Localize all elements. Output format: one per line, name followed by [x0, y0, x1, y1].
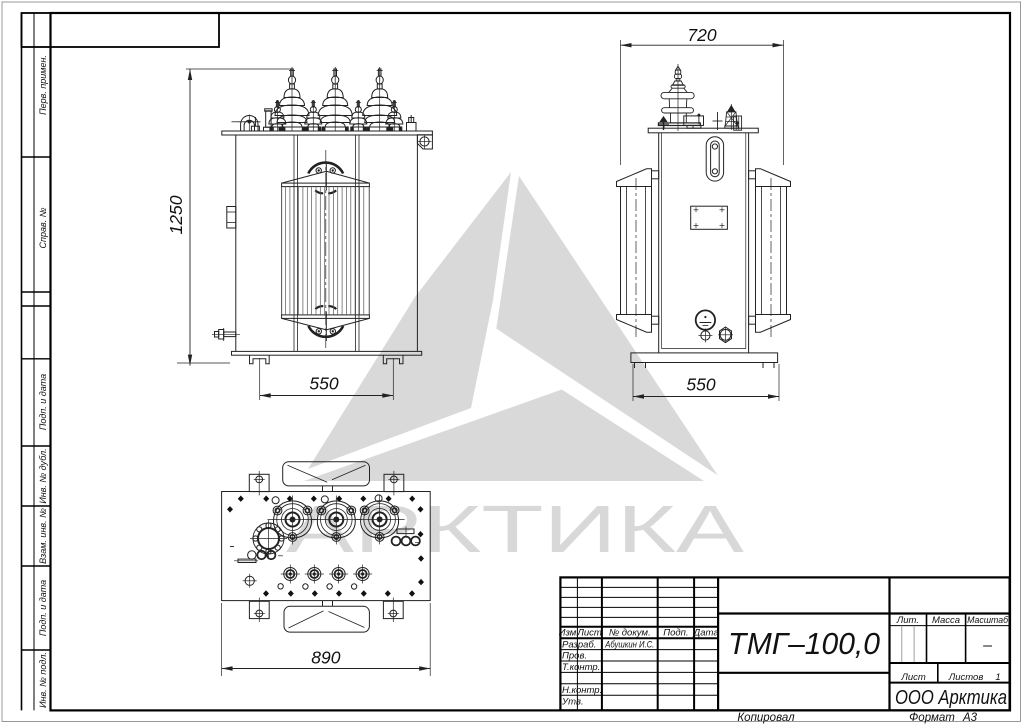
- svg-text:Лист: Лист: [900, 672, 926, 683]
- svg-text:Утв.: Утв.: [561, 696, 584, 707]
- svg-text:Т.контр.: Т.контр.: [562, 662, 600, 673]
- svg-text:Н.контр.: Н.контр.: [562, 685, 602, 696]
- svg-text:Лист: Лист: [576, 628, 602, 639]
- svg-text:ООО Арктика: ООО Арктика: [895, 686, 1007, 709]
- svg-text:Справ. №: Справ. №: [38, 207, 48, 248]
- svg-text:Дата: Дата: [693, 628, 719, 639]
- svg-text:Листов: Листов: [948, 672, 984, 683]
- svg-text:Абушкин И.С.: Абушкин И.С.: [604, 639, 654, 650]
- svg-text:Перв. примен.: Перв. примен.: [38, 55, 48, 115]
- svg-text:Копировал: Копировал: [737, 712, 795, 724]
- svg-text:Подп. и дата: Подп. и дата: [38, 580, 48, 636]
- svg-text:720: 720: [687, 25, 716, 45]
- svg-text:Масштаб: Масштаб: [967, 615, 1009, 626]
- svg-text:Инв. № подл.: Инв. № подл.: [38, 652, 48, 708]
- svg-text:550: 550: [686, 375, 715, 395]
- svg-text:Разраб.: Разраб.: [562, 639, 596, 650]
- svg-text:1: 1: [995, 672, 1000, 683]
- svg-text:Формат: Формат: [909, 712, 955, 724]
- svg-text:Масса: Масса: [932, 615, 960, 626]
- svg-text:550: 550: [309, 374, 338, 394]
- svg-text:Пров.: Пров.: [562, 651, 587, 662]
- svg-text:1250: 1250: [166, 195, 186, 234]
- svg-text:Взам. инв. №: Взам. инв. №: [38, 508, 48, 564]
- svg-text:Инв. № дубл.: Инв. № дубл.: [38, 448, 48, 503]
- svg-text:Подп. и дата: Подп. и дата: [38, 374, 48, 430]
- svg-text:Изм.: Изм.: [559, 628, 579, 639]
- svg-text:Лит.: Лит.: [896, 615, 919, 626]
- svg-text:890: 890: [311, 648, 340, 668]
- svg-text:А3: А3: [962, 712, 978, 724]
- svg-text:АРКТИКА: АРКТИКА: [286, 492, 744, 567]
- svg-text:–: –: [982, 637, 992, 654]
- svg-text:№ докум.: № докум.: [609, 628, 651, 639]
- svg-text:Подп.: Подп.: [663, 628, 688, 639]
- svg-text:ТМГ–100,0: ТМГ–100,0: [728, 626, 880, 661]
